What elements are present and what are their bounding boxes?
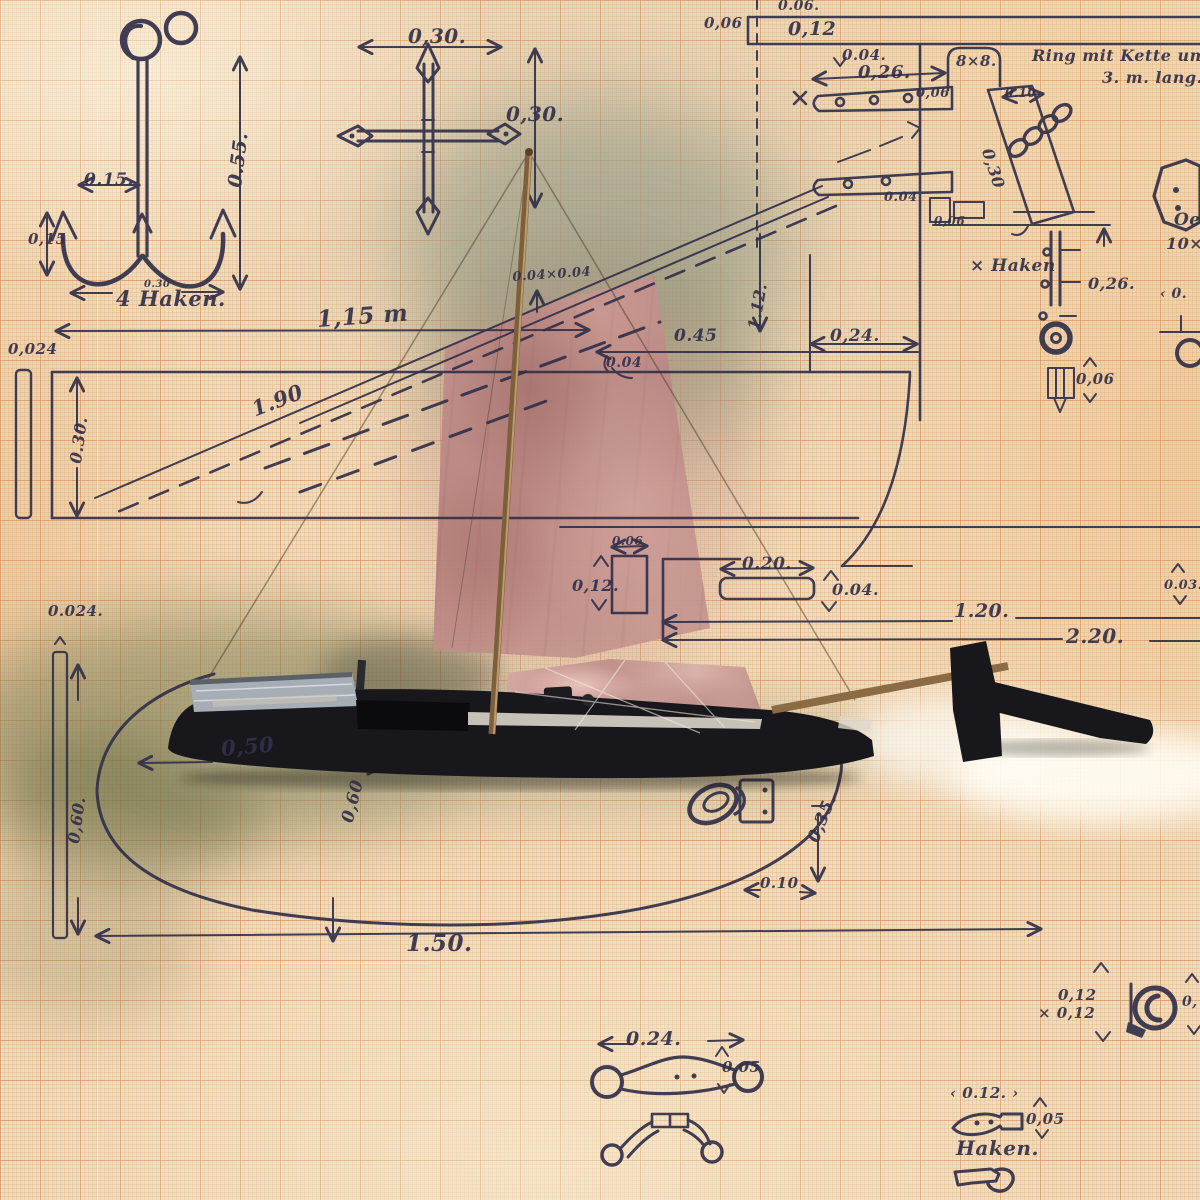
stovepipe xyxy=(356,660,366,690)
cockpit xyxy=(356,700,470,731)
forestay-rigging xyxy=(200,152,529,692)
mast xyxy=(492,150,529,734)
model-boat-photo xyxy=(0,0,1200,1200)
mast-highlight xyxy=(494,150,531,734)
backstay-rigging xyxy=(529,152,855,700)
mast-top xyxy=(525,148,533,156)
deck-hatch xyxy=(544,686,573,702)
blueprint-canvas: 0.15.0.55.0,150.304 Haken.0,30.0,30.0,06… xyxy=(0,0,1200,1200)
luff-rigging xyxy=(452,152,529,648)
